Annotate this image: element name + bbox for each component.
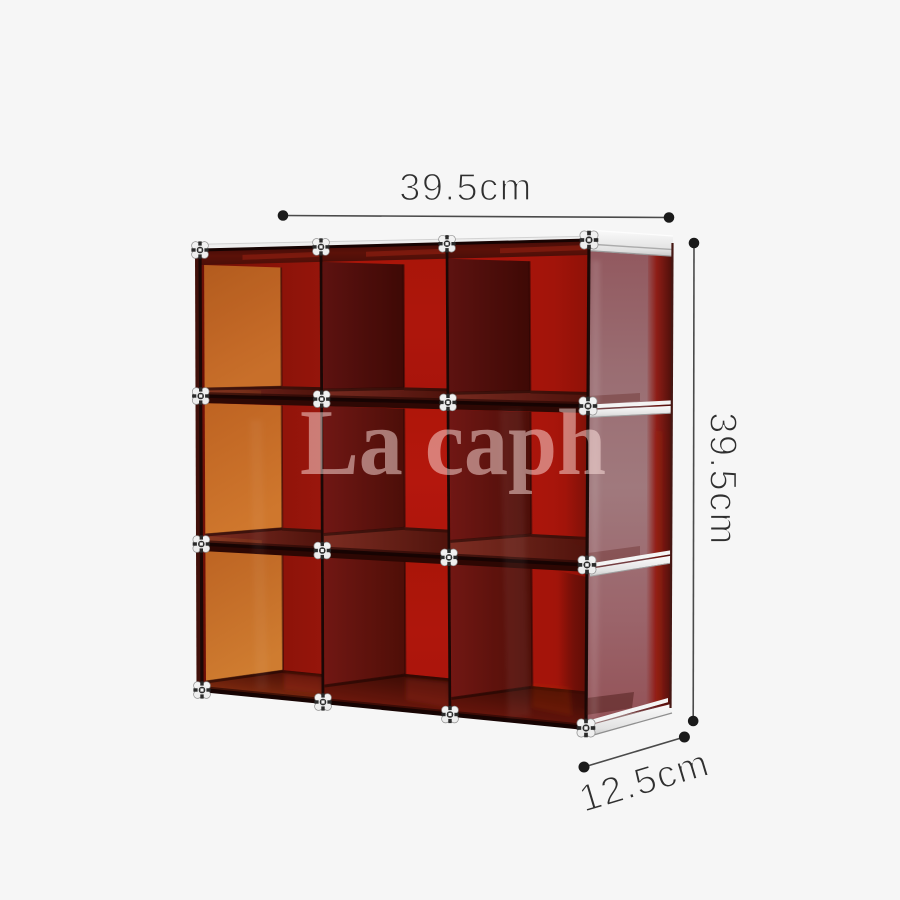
svg-text:39.5cm: 39.5cm (702, 412, 744, 546)
svg-text:La caph: La caph (300, 391, 606, 495)
svg-text:39.5cm: 39.5cm (399, 167, 533, 209)
